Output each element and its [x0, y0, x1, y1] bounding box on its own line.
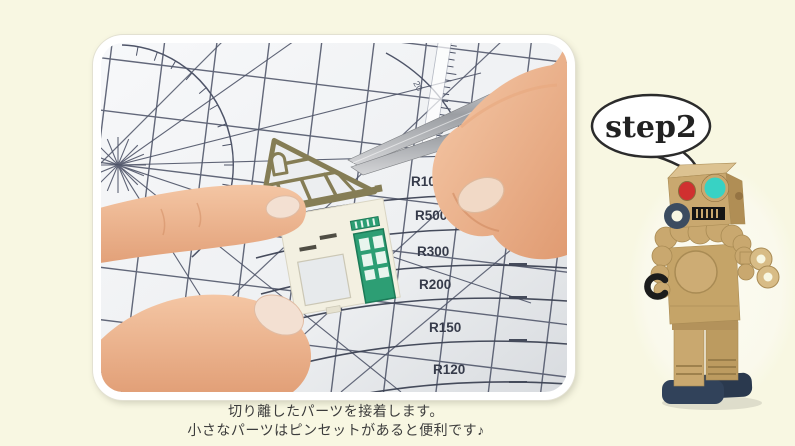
robot-head-side-knob: [735, 192, 743, 200]
step-bubble-label: step2: [605, 110, 697, 145]
robot-eye-right: [703, 176, 727, 200]
robot-mouth-grille: [692, 207, 725, 220]
robot-chest-disc: [675, 251, 717, 293]
svg-text:R200: R200: [419, 277, 451, 292]
assembly-photo-frame: 20 10 R1000: [93, 35, 575, 400]
robot-torso: [666, 244, 740, 324]
robot-ear-ring: [664, 203, 690, 229]
assembly-photo: 20 10 R1000: [101, 43, 567, 392]
robot-legs: [674, 322, 738, 386]
svg-text:R120: R120: [433, 362, 465, 377]
svg-text:R150: R150: [429, 320, 461, 335]
caption: 切り離したパーツを接着します。 小さなパーツはピンセットがあると便利です♪: [0, 402, 672, 440]
house-window-opening: [298, 254, 351, 305]
page-background: 20 10 R1000: [0, 0, 795, 446]
caption-line-2: 小さなパーツはピンセットがあると便利です♪: [0, 421, 672, 440]
house-gable-arch: [271, 153, 287, 175]
robot-figure: [628, 156, 795, 416]
svg-text:R300: R300: [417, 244, 449, 259]
robot-eye-left: [679, 182, 696, 201]
caption-line-1: 切り離したパーツを接着します。: [0, 402, 672, 421]
